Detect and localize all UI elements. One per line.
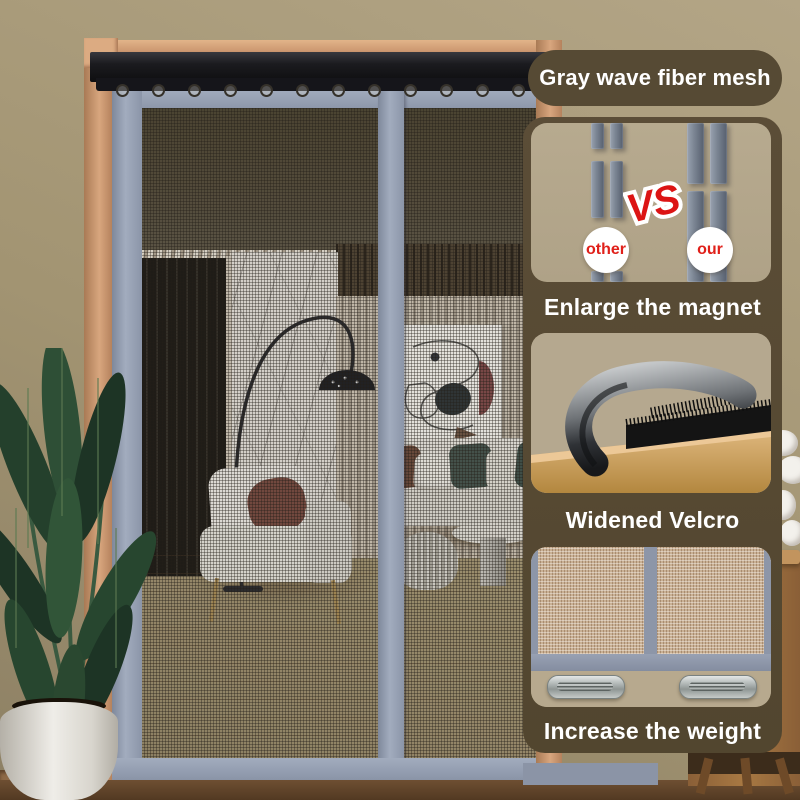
curtain-ring-icon — [152, 84, 165, 97]
other-circle-label: other — [583, 227, 629, 273]
orchid-flower-icon — [780, 520, 800, 546]
vs-badge: VS — [623, 173, 685, 239]
magnet-strip-small — [591, 123, 604, 149]
feature-panel: VS other our Enlarge the magnet — [523, 117, 782, 753]
screen-mesh — [138, 106, 545, 760]
curtain-ring-icon — [296, 84, 309, 97]
mesh-label-pill: Gray wave fiber mesh — [528, 50, 782, 106]
curtain-ring-icon — [476, 84, 489, 97]
caption-velcro: Widened Velcro — [523, 507, 782, 534]
feature-card-weight — [531, 547, 771, 707]
curtain-ring-icon — [404, 84, 417, 97]
mesh-bottom-bar — [531, 654, 771, 671]
curtain-ring-icon — [260, 84, 273, 97]
caption-magnet: Enlarge the magnet — [523, 294, 782, 321]
curtain-ring-icon — [224, 84, 237, 97]
weight-bar-icon — [679, 675, 757, 699]
weight-bar-icon — [547, 675, 625, 699]
curtain-ring-icon — [332, 84, 345, 97]
curtain-ring-icon — [188, 84, 201, 97]
magnet-strip-small — [610, 271, 623, 282]
magnet-strip-small — [610, 123, 623, 149]
magnet-strip-small — [610, 161, 623, 218]
screen-border-bottom-right — [523, 763, 658, 785]
mesh-label: Gray wave fiber mesh — [539, 65, 770, 91]
mesh-frame-edge — [764, 547, 771, 660]
mesh-frame-edge — [531, 547, 538, 660]
mesh-frame-divider — [644, 547, 657, 660]
caption-weight: Increase the weight — [523, 718, 782, 745]
curtain-ring-icon — [116, 84, 129, 97]
plant-pot — [0, 702, 118, 800]
svg-text:VS: VS — [623, 176, 685, 232]
screen-center-divider — [378, 86, 404, 788]
velcro-photo-icon — [531, 333, 771, 493]
feature-card-magnet: VS other our — [531, 123, 771, 282]
feature-card-velcro — [531, 333, 771, 493]
curtain-ring-icon — [440, 84, 453, 97]
magnet-strip-large — [687, 123, 704, 184]
magnet-strip-large — [710, 123, 727, 184]
magnet-strip-small — [591, 161, 604, 218]
our-circle-label: our — [687, 227, 733, 273]
curtain-ring-icon — [512, 84, 525, 97]
product-image: Gray wave fiber mesh VS other our Enl — [0, 0, 800, 800]
curtain-ring-icon — [368, 84, 381, 97]
